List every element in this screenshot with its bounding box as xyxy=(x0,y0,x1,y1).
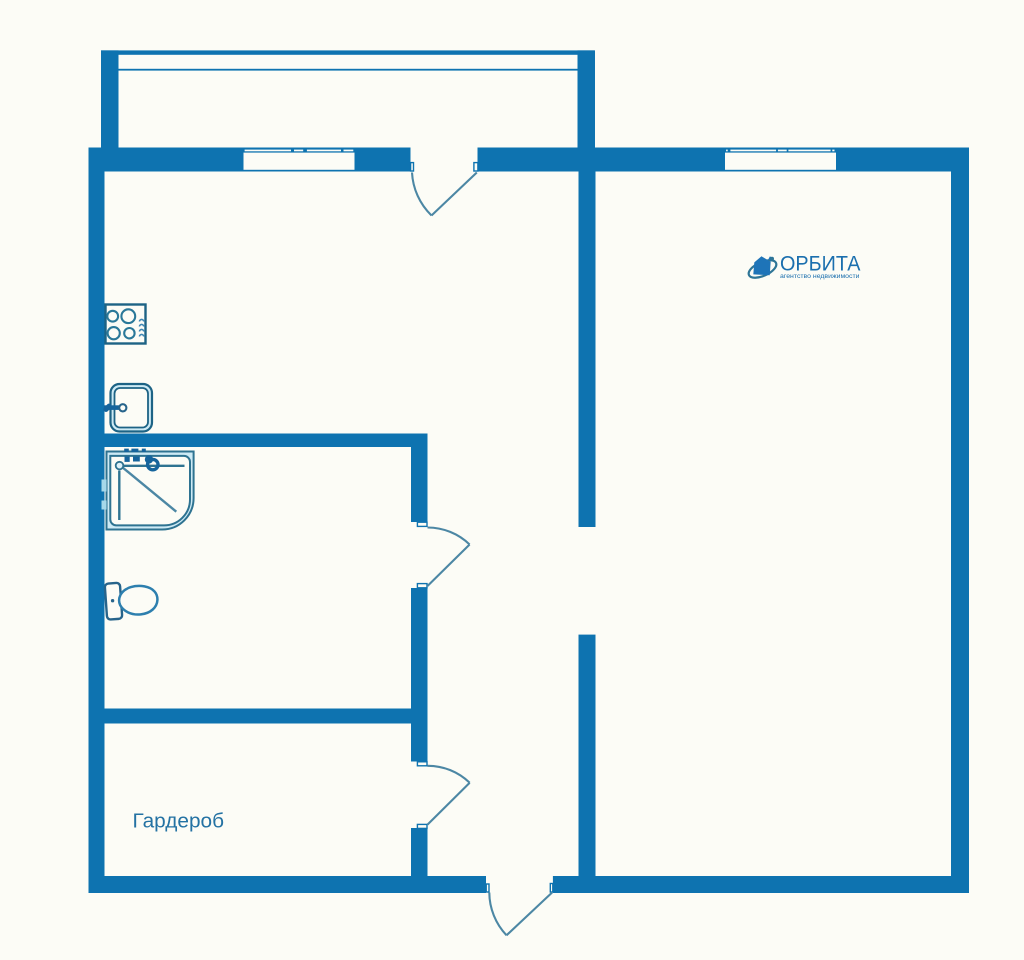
svg-text:Гардероб: Гардероб xyxy=(133,810,225,832)
svg-text:агентство недвижимости: агентство недвижимости xyxy=(780,273,860,280)
